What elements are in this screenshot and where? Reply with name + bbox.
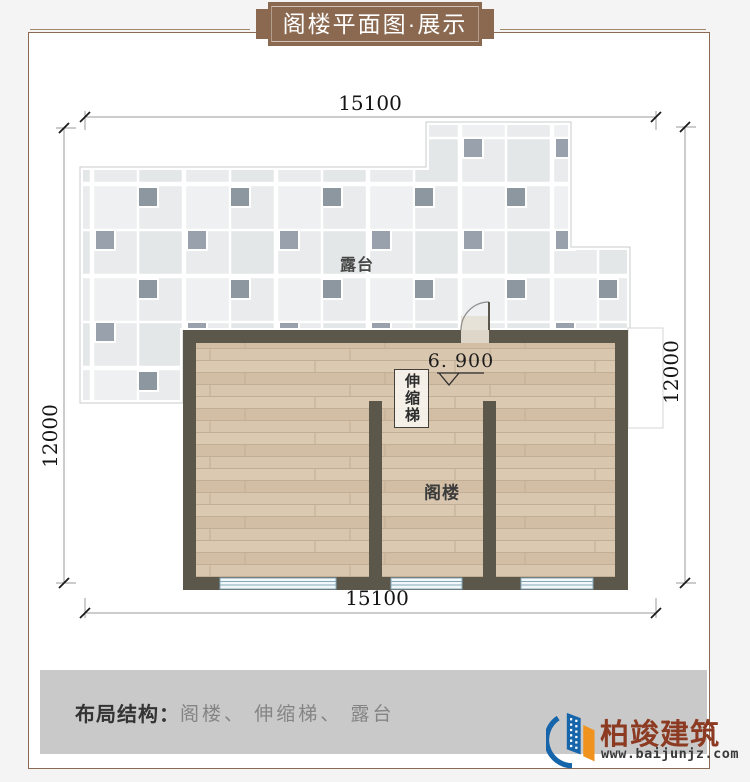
ladder-box: 伸缩梯 bbox=[394, 369, 429, 428]
title-banner: 阁楼平面图·展示 bbox=[256, 2, 494, 46]
dimension-bottom: 15100 bbox=[345, 586, 409, 610]
window-left bbox=[220, 578, 336, 589]
floor-plan-drawing bbox=[0, 0, 750, 782]
side-annex-outline bbox=[628, 328, 663, 428]
elevation-value: 6. 900 bbox=[428, 350, 494, 372]
banner-right-line bbox=[500, 29, 706, 30]
dimension-left: 12000 bbox=[38, 404, 62, 468]
building-logo-icon bbox=[546, 706, 598, 770]
brand-logo: 柏竣建筑 www.baijunjz.com bbox=[546, 706, 736, 772]
dimension-top: 15100 bbox=[338, 91, 402, 115]
dimension-right: 12000 bbox=[659, 340, 683, 404]
attic-label: 阁楼 bbox=[424, 479, 460, 504]
terrace-label: 露台 bbox=[340, 251, 374, 275]
partition-wall-left bbox=[369, 401, 382, 577]
window-right bbox=[521, 578, 593, 589]
partition-wall-right bbox=[483, 401, 496, 577]
banner-left-line bbox=[30, 29, 250, 30]
door-threshold bbox=[461, 316, 489, 331]
attic-floor-plan-page: 15100 15100 12000 12000 露台 阁楼 6. 900 伸缩梯… bbox=[0, 0, 750, 782]
ladder-label: 伸缩梯 bbox=[404, 373, 419, 424]
brand-website: www.baijunjz.com bbox=[601, 746, 739, 762]
page-title: 阁楼平面图·展示 bbox=[256, 2, 494, 46]
